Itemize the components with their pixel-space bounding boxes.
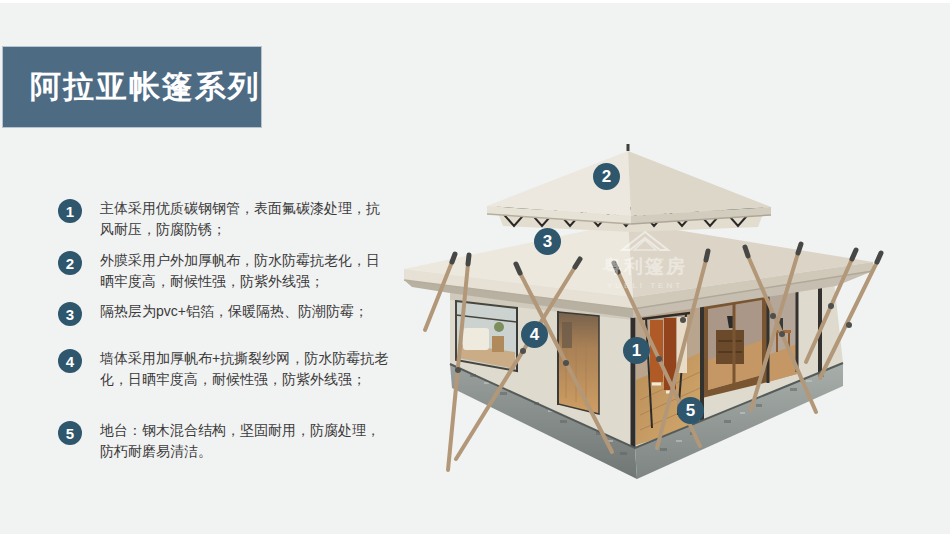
feature-number-badge: 4 [58,349,82,373]
feature-text: 地台：钢木混合结构，坚固耐用，防腐处理，防朽耐磨易清洁。 [100,420,392,462]
tent-illustration [380,140,950,500]
feature-number-badge: 2 [58,251,82,275]
feature-item-5: 5 地台：钢木混合结构，坚固耐用，防腐处理，防朽耐磨易清洁。 [58,420,392,462]
top-divider [0,0,950,3]
page-title: 阿拉亚帐篷系列 [2,66,261,108]
feature-item-2: 2 外膜采用户外加厚帆布，防水防霉抗老化，日晒牢度高，耐候性强，防紫外线强； [58,250,392,292]
tent-top-roof [487,144,771,224]
tent-marker-4: 4 [521,321,548,348]
feature-number-badge: 1 [58,199,82,223]
feature-number-badge: 5 [58,421,82,445]
feature-text: 隔热层为pvc+铝箔，保暖隔热、防潮防霉； [100,301,392,322]
feature-item-3: 3 隔热层为pvc+铝箔，保暖隔热、防潮防霉； [58,301,392,326]
feature-item-4: 4 墙体采用加厚帆布+抗撕裂纱网，防水防霉抗老化，日晒牢度高，耐候性强，防紫外线… [58,348,392,390]
tent-rendering [380,140,950,500]
tent-marker-3: 3 [534,228,561,255]
feature-item-1: 1 主体采用优质碳钢钢管，表面氟碳漆处理，抗风耐压，防腐防锈； [58,198,392,240]
title-banner: 阿拉亚帐篷系列 [2,46,262,128]
tent-marker-5: 5 [677,397,704,424]
tent-marker-1: 1 [623,337,650,364]
feature-text: 主体采用优质碳钢钢管，表面氟碳漆处理，抗风耐压，防腐防锈； [100,198,392,240]
feature-number-badge: 3 [58,302,82,326]
feature-text: 外膜采用户外加厚帆布，防水防霉抗老化，日晒牢度高，耐候性强，防紫外线强； [100,250,392,292]
page: { "page": { "background": "#f1f2f2" }, "… [0,0,950,534]
feature-text: 墙体采用加厚帆布+抗撕裂纱网，防水防霉抗老化，日晒牢度高，耐候性强，防紫外线强； [100,348,392,390]
tent-marker-2: 2 [593,163,620,190]
